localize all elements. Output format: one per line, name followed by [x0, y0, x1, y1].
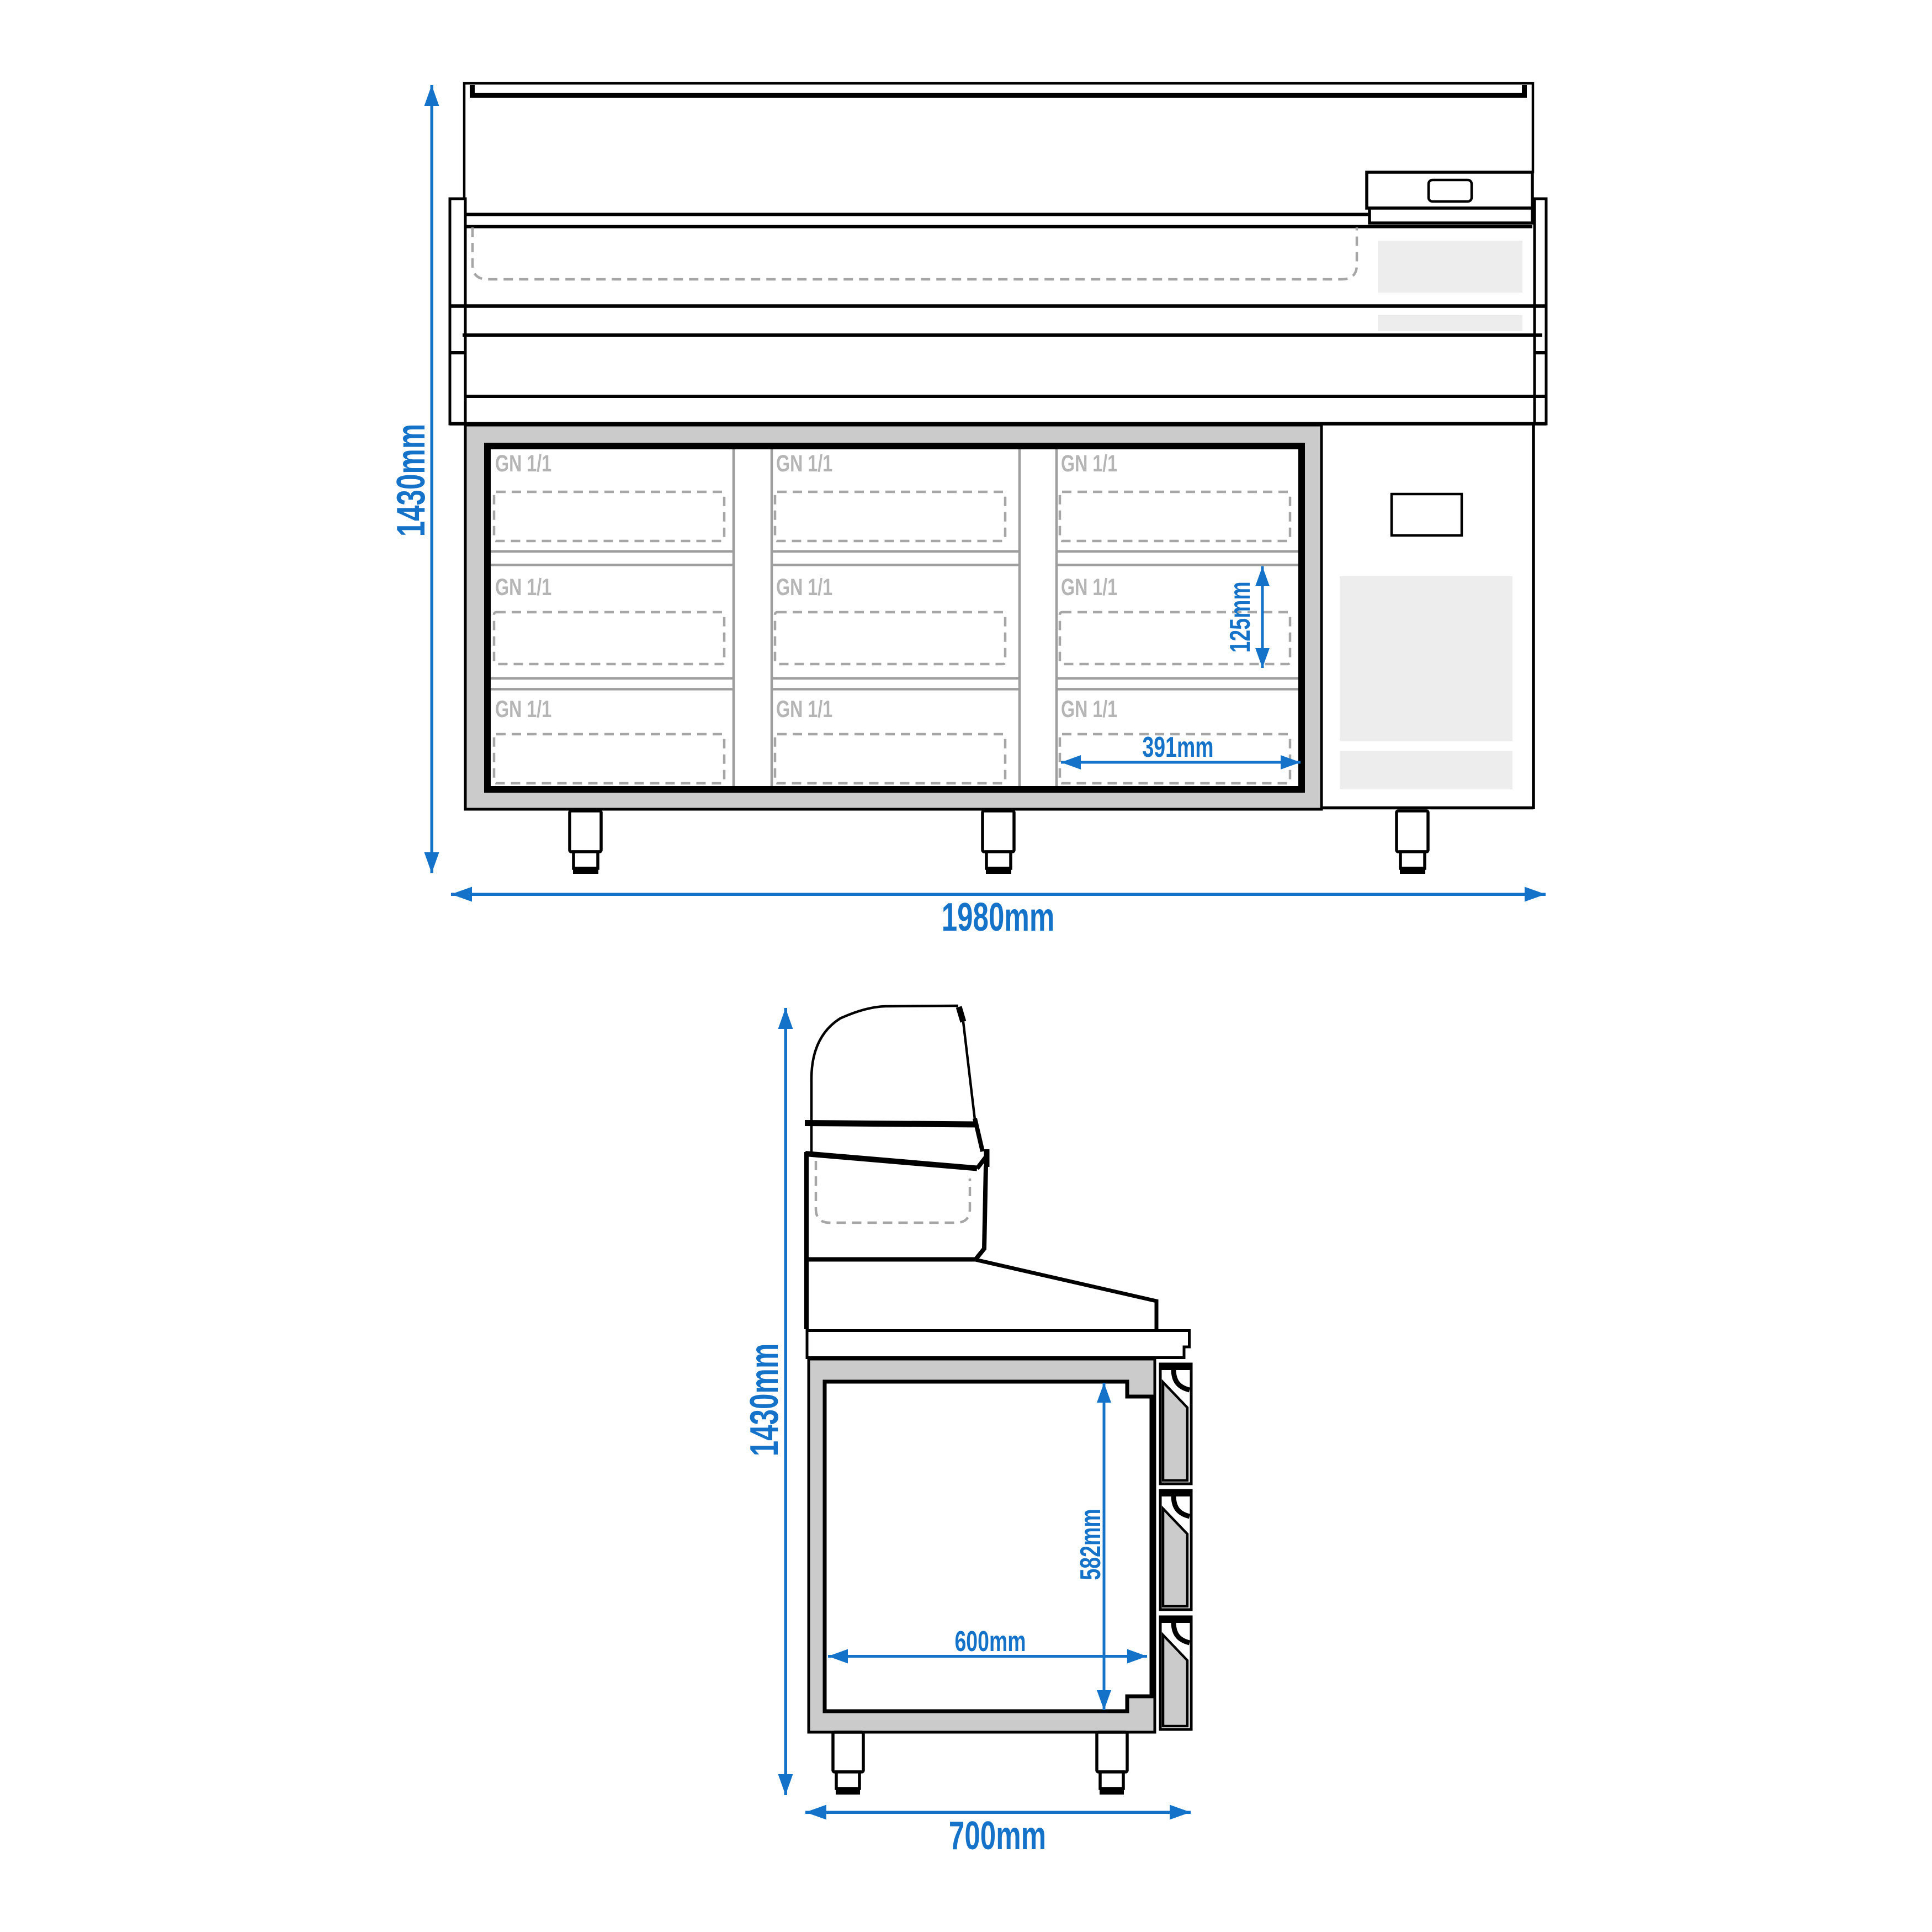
svg-text:GN 1/1: GN 1/1	[776, 697, 832, 723]
svg-text:1980mm: 1980mm	[942, 895, 1055, 940]
svg-text:GN 1/1: GN 1/1	[495, 697, 551, 723]
svg-text:GN 1/1: GN 1/1	[1061, 451, 1117, 477]
svg-text:GN 1/1: GN 1/1	[1061, 575, 1117, 601]
svg-text:700mm: 700mm	[949, 1813, 1046, 1858]
svg-text:1430mm: 1430mm	[389, 424, 433, 537]
svg-text:125mm: 125mm	[1224, 581, 1256, 652]
svg-text:GN 1/1: GN 1/1	[776, 575, 832, 601]
svg-text:GN 1/1: GN 1/1	[495, 575, 551, 601]
svg-text:600mm: 600mm	[954, 1625, 1026, 1658]
svg-text:391mm: 391mm	[1142, 731, 1213, 763]
svg-text:1430mm: 1430mm	[742, 1344, 787, 1457]
svg-text:GN 1/1: GN 1/1	[776, 451, 832, 477]
svg-text:582mm: 582mm	[1074, 1509, 1107, 1580]
svg-text:GN 1/1: GN 1/1	[1061, 697, 1117, 723]
svg-text:GN 1/1: GN 1/1	[495, 451, 551, 477]
